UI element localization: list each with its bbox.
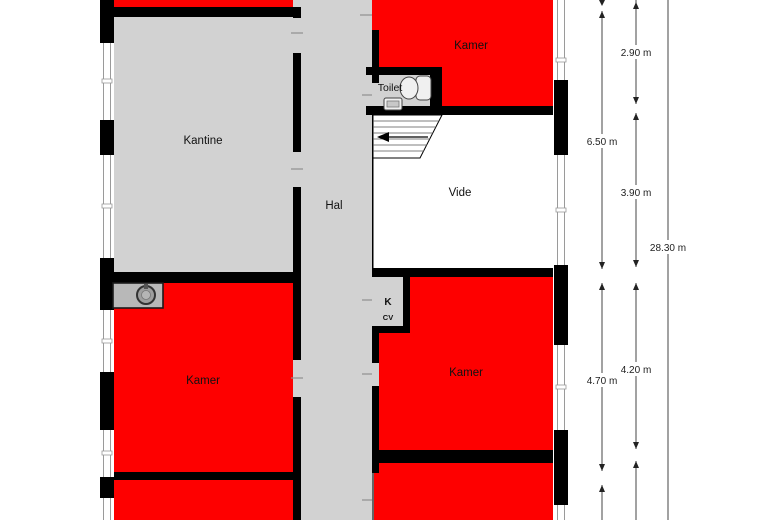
label-toilet: Toilet [378, 82, 403, 94]
label-closet-k: K [384, 297, 392, 308]
window [554, 155, 568, 265]
window [100, 498, 114, 520]
window [100, 155, 114, 258]
dim-label-290: 2.90 m [621, 48, 652, 59]
room-bottom-right-cut [374, 463, 553, 520]
dim-label-470: 4.70 m [587, 376, 618, 387]
wall-kantine-bottom [100, 272, 301, 283]
label-kamer-bottom-right: Kamer [449, 367, 483, 379]
left-outer-wall [100, 0, 114, 520]
room-hal [293, 0, 372, 520]
wall-closet-right [403, 268, 410, 333]
dim-label-2830: 28.30 m [650, 243, 686, 254]
window [100, 430, 114, 477]
label-kantine: Kantine [183, 135, 222, 147]
wall-hal-left [293, 7, 301, 520]
label-vide: Vide [449, 187, 472, 199]
wall-kantine-top [100, 7, 301, 17]
door-opening-kamer-right [372, 363, 379, 386]
sink-icon [113, 283, 163, 308]
label-kamer-bottom-left: Kamer [186, 375, 220, 387]
window [100, 43, 114, 120]
window [100, 310, 114, 372]
dim-label-390: 3.90 m [621, 188, 652, 199]
wall-kamer-right-bottom [372, 450, 553, 463]
window [554, 505, 568, 520]
label-kamer-top-right: Kamer [454, 40, 488, 52]
wall-kamer-left-bottom [100, 472, 301, 480]
window [554, 0, 568, 80]
room-bottom-left-cut [114, 480, 293, 520]
window [554, 345, 568, 430]
floor-plan-canvas: Kantine Hal Toilet Vide Kamer Kamer Kame… [0, 0, 780, 520]
dim-label-650: 6.50 m [587, 137, 618, 148]
wall-closet-bottom [372, 326, 410, 333]
label-closet-cv: CV [383, 313, 393, 322]
door-opening-kantine-top [293, 18, 301, 53]
label-hal: Hal [325, 200, 342, 212]
right-outer-wall [554, 0, 568, 520]
